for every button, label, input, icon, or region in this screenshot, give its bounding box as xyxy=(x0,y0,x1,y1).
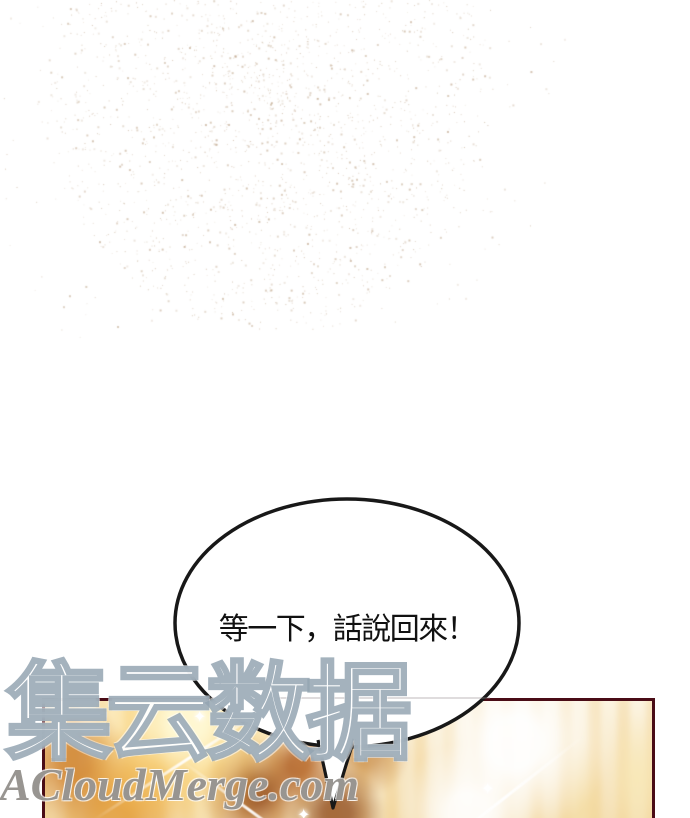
watermark-site-text: ACloudMerge.com xyxy=(0,758,359,811)
speech-bubble-text: 等一下，話說回來！ xyxy=(177,604,517,648)
watermark-cjk-text: 集云数据 xyxy=(6,656,406,773)
comic-page: ✦ ✦ ✦ 等一下，話說回來！ 集云数据 ACloudMerge.com xyxy=(0,0,690,818)
